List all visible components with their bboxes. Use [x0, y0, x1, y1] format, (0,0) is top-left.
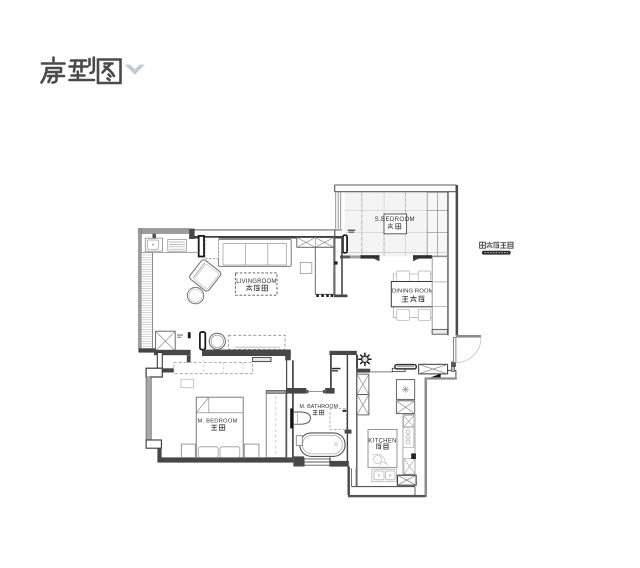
- svg-text:DINING ROOM: DINING ROOM: [392, 289, 434, 295]
- svg-text:M. BEDROOM: M. BEDROOM: [197, 418, 237, 424]
- svg-text:S.BEDROOM: S.BEDROOM: [375, 216, 415, 223]
- svg-text:KITCHEN: KITCHEN: [368, 439, 396, 445]
- svg-text:LIVINGROOM: LIVINGROOM: [236, 279, 276, 285]
- svg-text:M. BATHROOM: M. BATHROOM: [299, 404, 338, 410]
